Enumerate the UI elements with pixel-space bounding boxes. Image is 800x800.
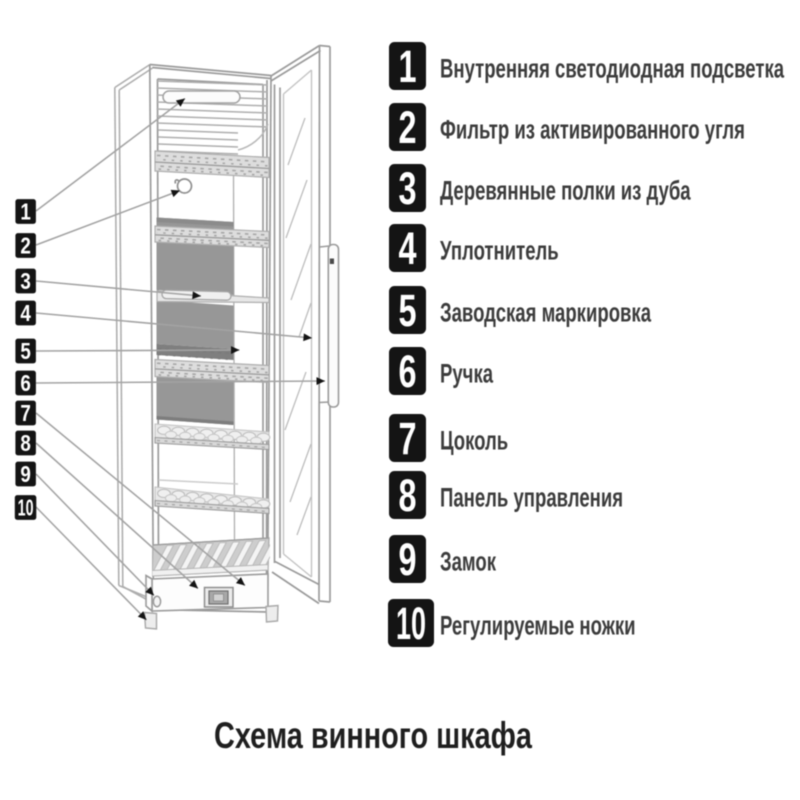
svg-text:4: 4 [398,225,416,274]
svg-text:1: 1 [20,200,31,225]
svg-text:Схема винного шкафа: Схема винного шкафа [214,716,532,757]
svg-text:2: 2 [398,104,416,153]
svg-text:5: 5 [20,340,31,365]
svg-text:Деревянные полки из дуба: Деревянные полки из дуба [440,175,691,205]
svg-text:2: 2 [20,234,30,259]
svg-text:Фильтр из активированного угля: Фильтр из активированного угля [440,114,745,144]
svg-text:Внутренняя светодиодная подсве: Внутренняя светодиодная подсветка [440,53,785,83]
svg-text:10: 10 [18,496,34,521]
svg-text:10: 10 [396,598,426,649]
svg-text:9: 9 [398,536,416,585]
svg-text:Цоколь: Цоколь [440,425,508,455]
svg-text:5: 5 [398,287,416,336]
svg-text:7: 7 [20,402,30,427]
svg-text:8: 8 [398,472,416,521]
svg-text:3: 3 [20,270,30,295]
svg-text:8: 8 [20,432,31,457]
svg-text:Заводская маркировка: Заводская маркировка [440,297,652,327]
svg-text:Уплотнитель: Уплотнитель [440,235,559,265]
svg-text:1: 1 [398,43,416,92]
svg-text:9: 9 [20,463,30,488]
svg-text:Панель управления: Панель управления [440,482,623,512]
svg-text:6: 6 [20,372,30,397]
svg-text:Замок: Замок [440,546,496,576]
svg-text:Регулируемые ножки: Регулируемые ножки [440,610,636,640]
svg-text:4: 4 [20,302,31,327]
svg-text:3: 3 [398,165,416,214]
svg-text:6: 6 [398,348,416,397]
svg-text:Ручка: Ручка [440,358,494,388]
svg-text:7: 7 [398,415,416,464]
